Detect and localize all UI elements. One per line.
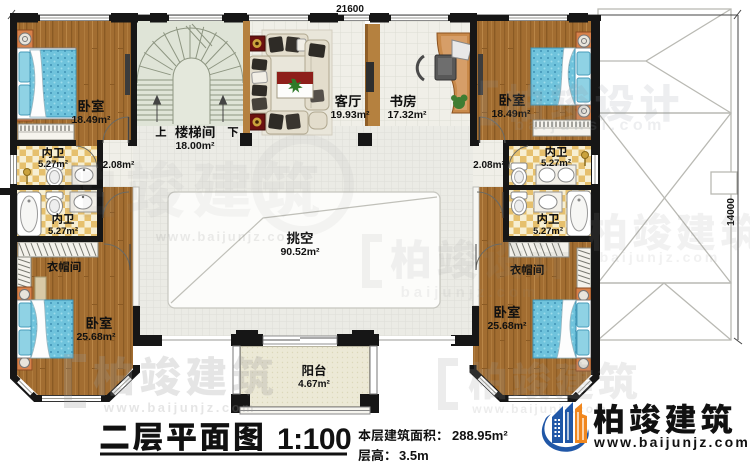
svg-text:4.67m²: 4.67m² (298, 379, 330, 390)
svg-text:baijunjz.com: baijunjz.com (600, 249, 721, 265)
svg-text:21600: 21600 (336, 4, 364, 15)
svg-text:18.00m²: 18.00m² (175, 140, 215, 152)
svg-text:1:100: 1:100 (277, 423, 351, 456)
svg-text:www.baijunjz.com: www.baijunjz.com (471, 402, 608, 416)
svg-text:288.95m²: 288.95m² (452, 428, 508, 443)
svg-text:25.68m²: 25.68m² (487, 320, 527, 332)
svg-text:www.baijunjz.com: www.baijunjz.com (155, 229, 300, 244)
svg-text:baijunsi.com: baijunsi.com (514, 117, 666, 134)
svg-text:25.68m²: 25.68m² (76, 331, 116, 343)
svg-text:5.27m²: 5.27m² (541, 158, 571, 169)
svg-text:5.27m²: 5.27m² (533, 226, 563, 237)
svg-text:www.baijunjz.com: www.baijunjz.com (593, 434, 750, 450)
svg-text:5.27m²: 5.27m² (48, 226, 78, 237)
svg-text:19.93m²: 19.93m² (330, 109, 370, 121)
svg-text:baijunjz.com: baijunjz.com (401, 284, 540, 301)
svg-text:www.baijunjz.com: www.baijunjz.com (103, 400, 256, 415)
svg-text:2.08m²: 2.08m² (473, 160, 505, 171)
svg-text:90.52m²: 90.52m² (280, 246, 320, 258)
svg-text:17.32m²: 17.32m² (387, 109, 427, 121)
svg-text:3.5m: 3.5m (399, 448, 429, 463)
svg-text:5.27m²: 5.27m² (38, 159, 68, 170)
svg-text:18.49m²: 18.49m² (71, 114, 111, 126)
svg-text:2.08m²: 2.08m² (103, 160, 135, 171)
